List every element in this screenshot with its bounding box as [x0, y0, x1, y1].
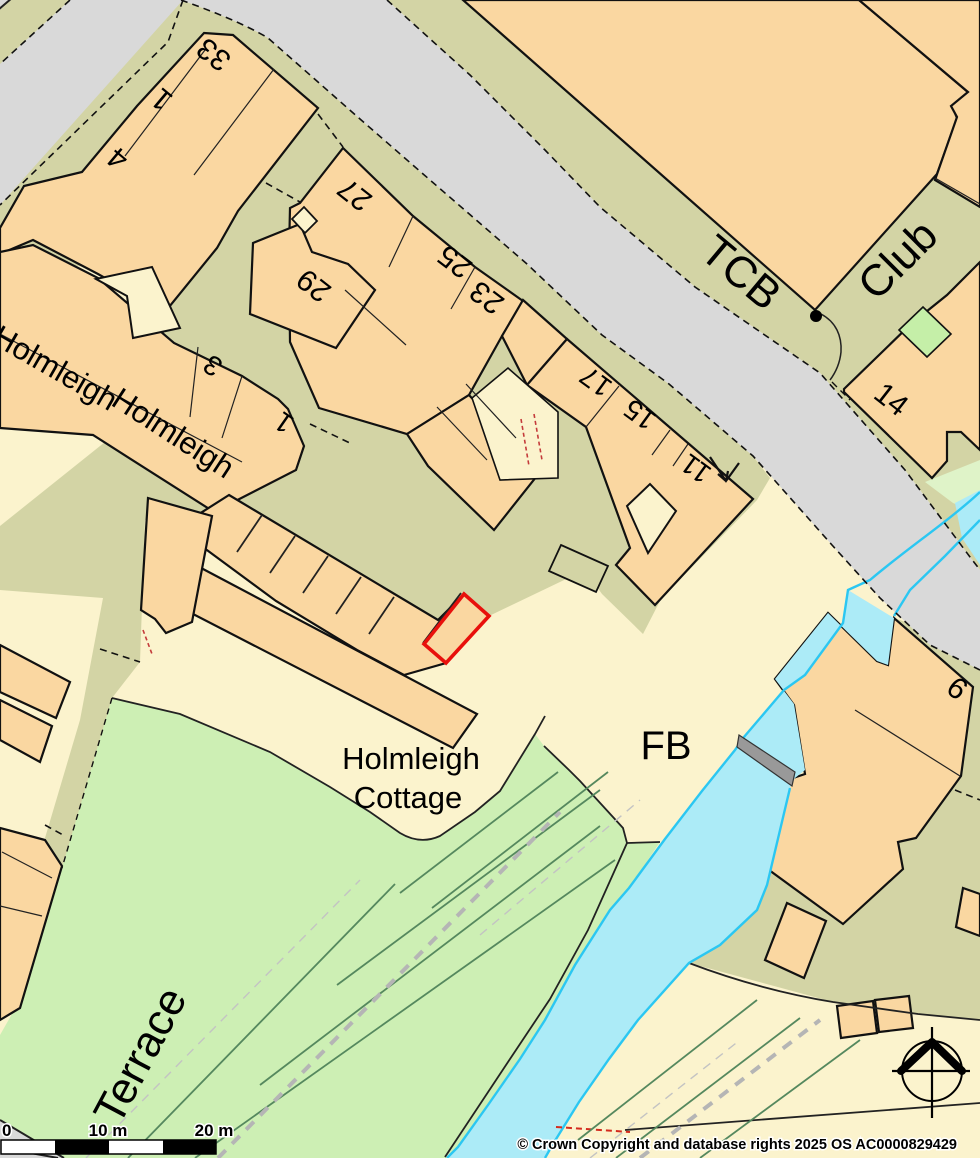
svg-text:Cottage: Cottage: [354, 780, 463, 815]
svg-text:FB: FB: [640, 724, 691, 768]
svg-text:© Crown Copyright and database: © Crown Copyright and database rights 20…: [517, 1137, 957, 1153]
svg-text:Holmleigh: Holmleigh: [342, 741, 480, 776]
svg-text:0: 0: [2, 1121, 11, 1140]
svg-text:20 m: 20 m: [195, 1121, 234, 1140]
svg-text:10 m: 10 m: [89, 1121, 128, 1140]
